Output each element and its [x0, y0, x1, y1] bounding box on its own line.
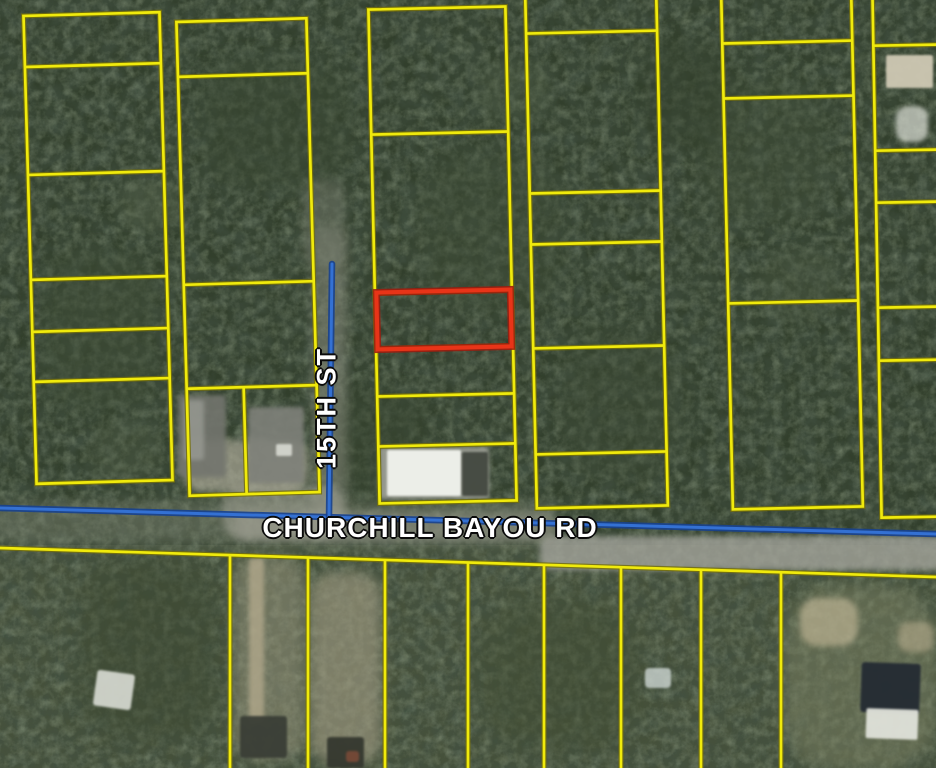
terrain-patch: [860, 662, 921, 714]
terrain-patch: [120, 180, 180, 230]
terrain-patch: [480, 600, 640, 750]
terrain-patch: [462, 452, 488, 496]
terrain-patch: [886, 55, 933, 88]
terrain-patch: [249, 558, 264, 723]
terrain-patch: [80, 560, 220, 740]
terrain-patch: [200, 60, 350, 190]
terrain-patch: [760, 250, 840, 320]
terrain-patch: [645, 668, 671, 688]
terrain-patch: [480, 60, 550, 120]
terrain-patch: [248, 407, 304, 483]
terrain-patch: [896, 106, 928, 142]
road-label-15th-st: 15TH ST: [312, 347, 343, 469]
terrain-patch: [898, 622, 934, 652]
terrain-patch: [276, 444, 292, 456]
road-label-churchill-bayou-rd: CHURCHILL BAYOU RD: [262, 512, 597, 544]
terrain-patch: [865, 708, 918, 740]
terrain-patch: [800, 598, 858, 646]
aerial-basemap: [0, 0, 936, 768]
terrain-patch: [90, 420, 160, 480]
terrain-patch: [346, 751, 359, 762]
terrain-patch: [420, 150, 560, 310]
terrain-patch: [310, 572, 382, 764]
terrain-patch: [640, 40, 730, 150]
parcel-map[interactable]: CHURCHILL BAYOU RD 15TH ST: [0, 0, 936, 768]
terrain-patch: [240, 716, 287, 758]
terrain-patch: [93, 670, 136, 711]
terrain-patch: [387, 450, 461, 496]
